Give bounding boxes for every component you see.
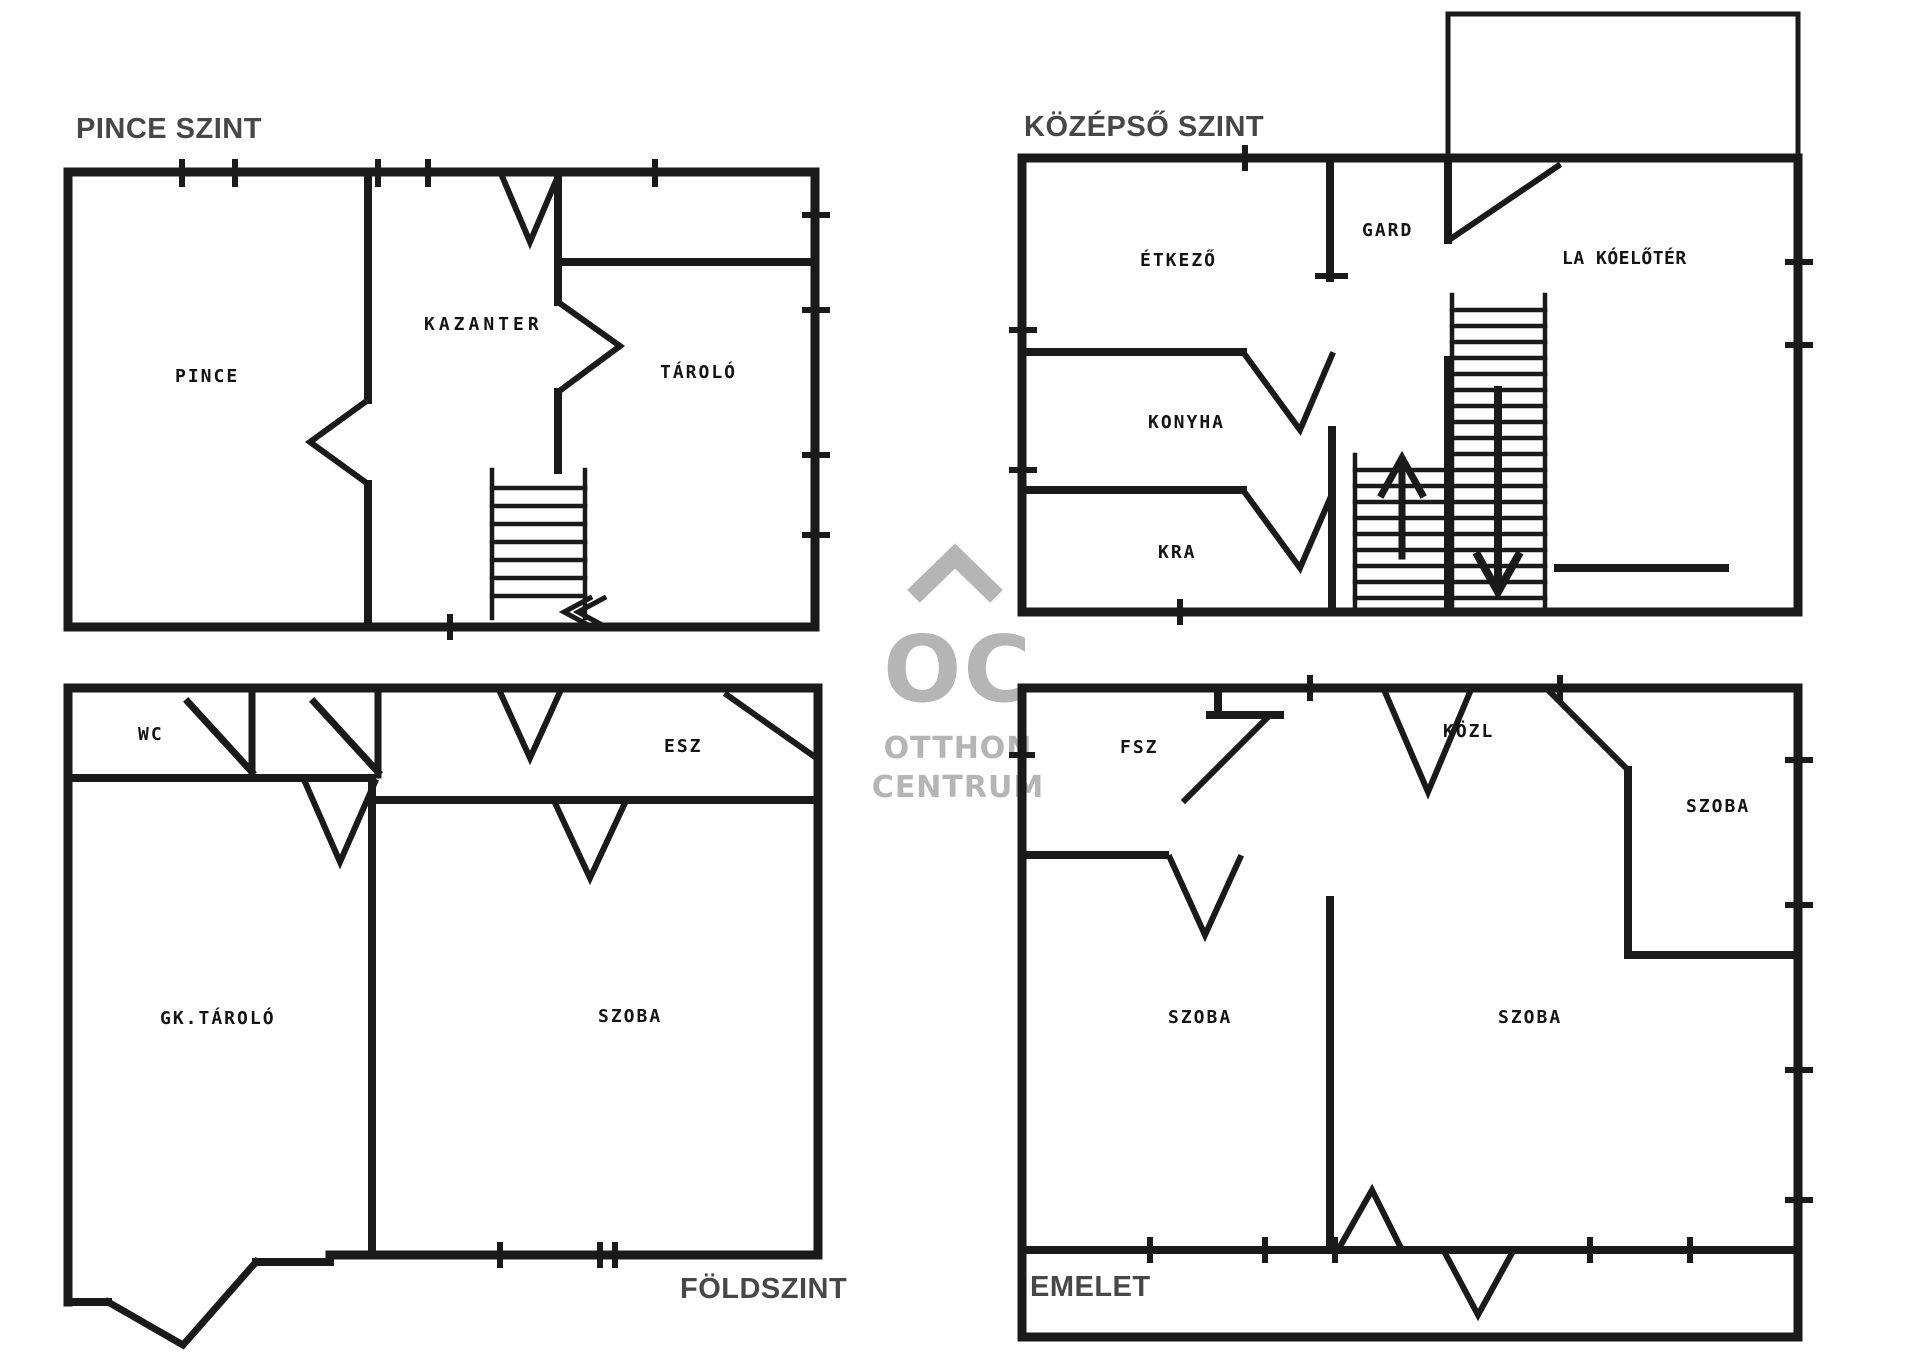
room-label-lakoeloter: LA KÓELŐTÉR xyxy=(1562,247,1687,269)
upper-title: EMELET xyxy=(1030,1271,1151,1303)
wall-tick xyxy=(182,162,827,637)
room-label-gard: GARD xyxy=(1362,220,1413,241)
room-label-kazanter: KAZANTER xyxy=(424,314,543,335)
room-label-szoba-bottom-left: SZOBA xyxy=(1168,1007,1232,1028)
room-label-gk-tarolo: GK.TÁROLÓ xyxy=(160,1007,276,1029)
floor-plan-ground: WC ESZ GK.TÁROLÓ SZOBA FÖLDSZINT xyxy=(68,688,847,1345)
wall-outline xyxy=(1022,688,1798,1337)
stairs-up-arrow-icon xyxy=(1382,458,1422,556)
bay-door-swing xyxy=(108,1262,256,1345)
floor-plan-middle: KÖZÉPSŐ SZINT ÉTKEZŐ GARD LA KÓELŐTÉR KO… xyxy=(1012,14,1810,622)
wall-tick xyxy=(1012,678,1810,1260)
wall-segment xyxy=(1022,688,1798,1250)
wall-segment xyxy=(368,172,815,627)
room-label-fsz: FSZ xyxy=(1120,737,1159,758)
floor-plan-sheet: OC OTTHON CENTRUM PINCE SZINT PINCE KAZA… xyxy=(0,0,1920,1358)
room-label-szoba-bottom-right: SZOBA xyxy=(1498,1007,1562,1028)
staircase xyxy=(492,470,604,626)
room-label-pince: PINCE xyxy=(175,366,239,387)
floor-plan-upper: FSZ KÖZL SZOBA SZOBA SZOBA EMELET xyxy=(1012,678,1810,1337)
stair-treads xyxy=(492,488,585,596)
wall-outline xyxy=(68,172,815,627)
bay-wall xyxy=(68,1255,330,1302)
door-swing xyxy=(1170,692,1628,1315)
watermark-monogram: OC xyxy=(883,616,1033,723)
staircase-up xyxy=(1355,455,1448,608)
room-label-tarolo: TÁROLÓ xyxy=(660,361,737,383)
room-label-szoba-top-right: SZOBA xyxy=(1686,796,1750,817)
room-label-kra: KRA xyxy=(1158,542,1197,563)
room-label-szoba: SZOBA xyxy=(598,1006,662,1027)
room-label-kozl: KÖZL xyxy=(1443,720,1494,742)
terrace-outline xyxy=(1448,14,1798,160)
roof-chevron-icon xyxy=(920,556,990,590)
room-label-etkezo: ÉTKEZŐ xyxy=(1140,249,1217,271)
watermark-line1: OTTHON xyxy=(884,731,1033,766)
ground-title: FÖLDSZINT xyxy=(680,1272,847,1305)
middle-title: KÖZÉPSŐ SZINT xyxy=(1024,109,1264,143)
staircase-down xyxy=(1452,295,1545,608)
room-label-konyha: KONYHA xyxy=(1148,412,1225,433)
door-swing-triangles xyxy=(188,695,378,775)
floor-plan-basement: PINCE SZINT PINCE KAZANTER TÁROLÓ xyxy=(68,113,827,637)
room-label-wc: WC xyxy=(138,724,164,745)
basement-title: PINCE SZINT xyxy=(76,113,262,145)
room-label-esz: ESZ xyxy=(664,736,703,757)
